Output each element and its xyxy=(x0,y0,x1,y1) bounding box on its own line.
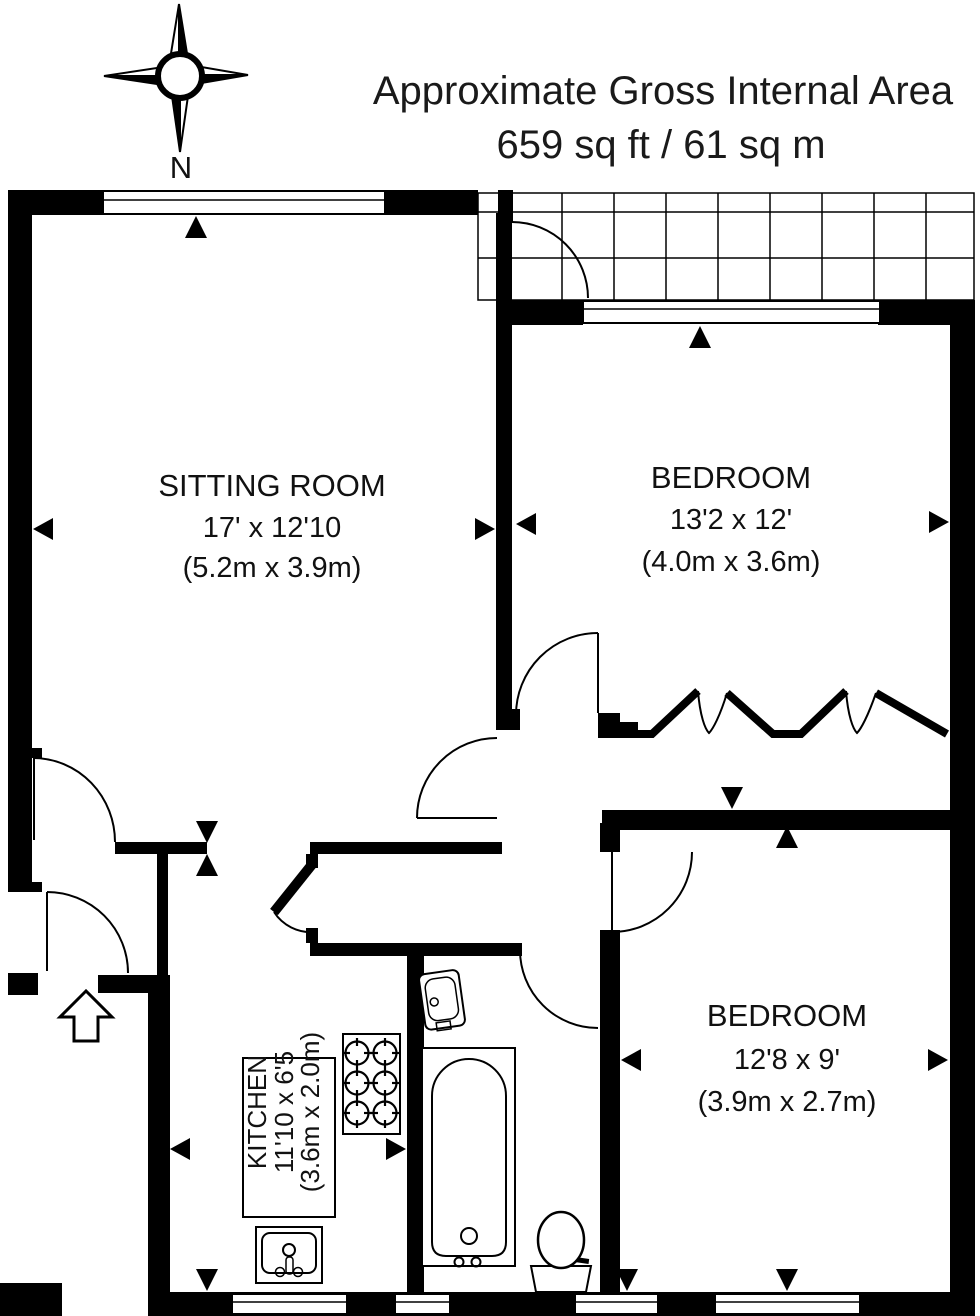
floorplan-svg: N Approximate Gross Internal Area 659 sq… xyxy=(0,0,980,1316)
door-arc xyxy=(417,738,497,818)
wall-segment xyxy=(115,842,207,854)
door-bathroom xyxy=(520,950,598,1028)
door-hall-closet xyxy=(34,758,115,842)
bedroom2-imperial: 12'8 x 9' xyxy=(734,1044,840,1076)
page-title-line2: 659 sq ft / 61 sq m xyxy=(496,123,825,167)
window-frame xyxy=(232,1294,347,1314)
bedroom2-metric: (3.9m x 2.7m) xyxy=(698,1086,877,1118)
window-bedroom2-left xyxy=(575,1294,658,1314)
sitting-room-label: SITTING ROOM xyxy=(158,468,385,503)
measure-arrow-down xyxy=(196,821,218,843)
wall-segment xyxy=(600,823,620,852)
wardrobe-hanger-hook xyxy=(846,691,876,733)
measure-arrow-left xyxy=(621,1049,641,1071)
bedroom1-imperial: 13'2 x 12' xyxy=(670,504,792,536)
window-sitting-room xyxy=(103,191,385,214)
door-bedroom1 xyxy=(516,633,598,715)
door-leaf xyxy=(274,862,314,912)
balcony-grid xyxy=(478,193,974,300)
compass-north-label: N xyxy=(170,150,192,185)
measure-arrow-left xyxy=(516,513,536,535)
kitchen-metric: (3.6m x 2.0m) xyxy=(295,1032,325,1192)
measure-arrow-down xyxy=(776,1269,798,1291)
wall-segment xyxy=(0,1283,62,1316)
wall-segment xyxy=(310,842,502,854)
compass-rose-icon: N xyxy=(104,4,248,185)
measure-arrow-right xyxy=(929,511,949,533)
entrance-arrow-icon xyxy=(60,991,112,1041)
wardrobe-hanger-hook xyxy=(698,691,727,733)
toilet-bowl xyxy=(538,1212,584,1268)
window-bathroom xyxy=(395,1294,450,1314)
door-arc xyxy=(34,758,115,842)
wall-segment xyxy=(878,300,975,325)
window-kitchen xyxy=(232,1294,347,1314)
door-balcony xyxy=(511,222,588,298)
wall-segment xyxy=(8,973,38,995)
toilet xyxy=(531,1212,591,1292)
door-arc xyxy=(512,222,588,298)
wall-segment xyxy=(602,810,975,830)
window-frame xyxy=(715,1294,860,1314)
balcony-outline xyxy=(478,193,974,300)
door-entrance xyxy=(47,892,128,973)
wall-segment xyxy=(28,882,42,892)
wall-segment xyxy=(310,943,522,956)
door-bedroom2 xyxy=(612,852,692,932)
window-bedroom1 xyxy=(583,301,880,323)
bathroom-sink xyxy=(418,969,466,1032)
door-arc xyxy=(612,852,692,932)
measure-arrow-up xyxy=(689,326,711,348)
window-frame xyxy=(575,1294,658,1314)
wall-segment xyxy=(148,975,170,1316)
window-frame xyxy=(103,191,385,214)
window-frame xyxy=(395,1294,450,1314)
measure-arrow-down xyxy=(721,787,743,809)
wall-segment xyxy=(600,943,620,1292)
bedroom1-label: BEDROOM xyxy=(651,460,811,495)
door-kitchen xyxy=(274,862,314,932)
wardrobe-rail xyxy=(876,693,947,734)
cooker-hob xyxy=(342,1034,400,1134)
wall-segment xyxy=(306,928,318,943)
measure-arrow-right xyxy=(928,1049,948,1071)
measure-arrow-left xyxy=(33,518,53,540)
measure-arrow-down xyxy=(196,1269,218,1291)
window-bedroom2-right xyxy=(715,1294,860,1314)
sitting-room-imperial: 17' x 12'10 xyxy=(203,512,341,544)
sitting-room-metric: (5.2m x 3.9m) xyxy=(183,552,362,584)
measure-arrow-right xyxy=(386,1138,406,1160)
doors xyxy=(34,222,692,1028)
measure-arrow-up xyxy=(185,216,207,238)
toilet-cistern xyxy=(531,1266,591,1292)
door-arc xyxy=(516,633,598,715)
door-arc xyxy=(520,950,598,1028)
measure-arrow-up xyxy=(196,854,218,876)
wardrobe-symbol xyxy=(612,691,947,734)
floorplan-page: N Approximate Gross Internal Area 659 sq… xyxy=(0,0,980,1316)
wall-segment xyxy=(98,975,150,993)
kitchen-label: KITCHEN xyxy=(242,1055,272,1169)
page-title-line1: Approximate Gross Internal Area xyxy=(373,69,954,113)
bedroom1-metric: (4.0m x 3.6m) xyxy=(642,546,821,578)
wall-segment xyxy=(950,300,975,1316)
wall-segment xyxy=(505,300,583,325)
measure-arrow-left xyxy=(170,1138,190,1160)
compass-circle xyxy=(158,54,202,98)
wall-segment xyxy=(8,190,32,892)
door-arc xyxy=(47,892,128,973)
bathtub xyxy=(422,1048,515,1267)
window-frame xyxy=(583,301,880,323)
kitchen-sink xyxy=(256,1227,322,1283)
door-sitting-room xyxy=(417,738,497,818)
bedroom2-label: BEDROOM xyxy=(707,998,867,1033)
wall-segment xyxy=(28,748,42,758)
wall-segment xyxy=(496,213,512,730)
wall-segment xyxy=(157,853,168,978)
wardrobe-rail xyxy=(727,691,846,734)
sink-outer xyxy=(418,969,465,1030)
measure-arrow-right xyxy=(475,518,495,540)
